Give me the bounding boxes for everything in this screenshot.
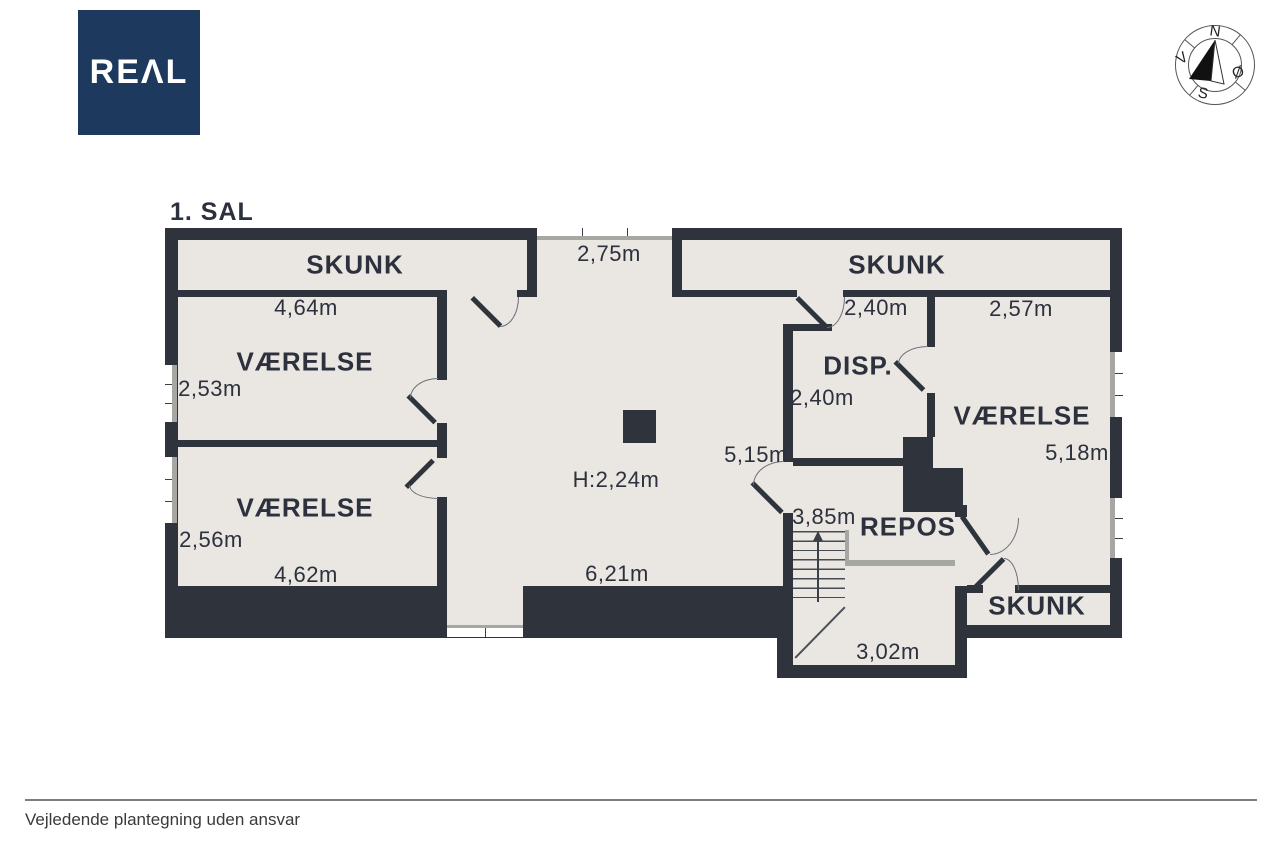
room-label-skunk-right: SKUNK [848, 250, 945, 281]
wall [777, 665, 967, 678]
wall [437, 423, 447, 458]
wall [437, 297, 447, 380]
room-label-vaerelse-right: VÆRELSE [953, 401, 1090, 432]
room-label-repos: REPOS [860, 512, 956, 543]
stair-direction-arrowhead-icon [813, 531, 823, 541]
footer-divider [25, 799, 1257, 801]
window-left-upper [165, 365, 177, 422]
dim-vaerelse-right-width: 2,57m [989, 296, 1053, 322]
dim-vaerelse-upper-depth: 2,53m [178, 376, 242, 402]
floor-plan: SKUNK VÆRELSE VÆRELSE SKUNK DISP. VÆRELS… [0, 0, 1280, 853]
dim-disp-depth: 2,40m [790, 385, 854, 411]
wall [927, 393, 935, 437]
window-top [537, 228, 672, 240]
wall [165, 440, 437, 447]
window-left-lower [165, 457, 177, 523]
wall [793, 458, 903, 466]
dim-vaerelse-lower-depth: 2,56m [179, 527, 243, 553]
footer-disclaimer: Vejledende plantegning uden ansvar [25, 810, 300, 830]
window-right-upper [1110, 352, 1123, 417]
floor-area-window-bay [447, 586, 523, 625]
floorplan-page: { "colors": {"wall":"#2e333c","floor":"#… [0, 0, 1280, 853]
dim-hall-length: 5,15m [724, 442, 788, 468]
window-bay-bottom [447, 625, 523, 637]
window-right-lower [1110, 498, 1123, 558]
wall [437, 497, 447, 587]
dim-hall-width: 6,21m [585, 561, 649, 587]
stair-treads [793, 531, 845, 606]
stair-edge [845, 530, 849, 562]
room-label-vaerelse-lower: VÆRELSE [236, 493, 373, 524]
chimney-block [903, 468, 963, 512]
wall [527, 228, 537, 297]
dim-vaerelse-right-depth: 5,18m [1045, 440, 1109, 466]
chimney-block [623, 410, 656, 443]
dim-skunk-right-width: 2,40m [844, 295, 908, 321]
room-label-skunk-left: SKUNK [306, 250, 403, 281]
room-label-disp: DISP. [823, 351, 893, 382]
dim-hall-top-width: 2,75m [577, 241, 641, 267]
dim-vaerelse-lower-width: 4,62m [274, 562, 338, 588]
dim-hall-ceiling-height: H:2,24m [573, 467, 660, 493]
room-label-vaerelse-upper: VÆRELSE [236, 347, 373, 378]
dim-vaerelse-upper-width: 4,64m [274, 295, 338, 321]
wall [672, 228, 682, 297]
landing-edge [845, 560, 955, 566]
room-label-skunk-bottom: SKUNK [988, 591, 1085, 622]
wall [927, 297, 935, 347]
dim-stair-width: 3,02m [856, 639, 920, 665]
dim-repos-width: 3,85m [792, 504, 856, 530]
stair-direction-arrow-icon [817, 540, 819, 602]
wall [682, 290, 797, 297]
